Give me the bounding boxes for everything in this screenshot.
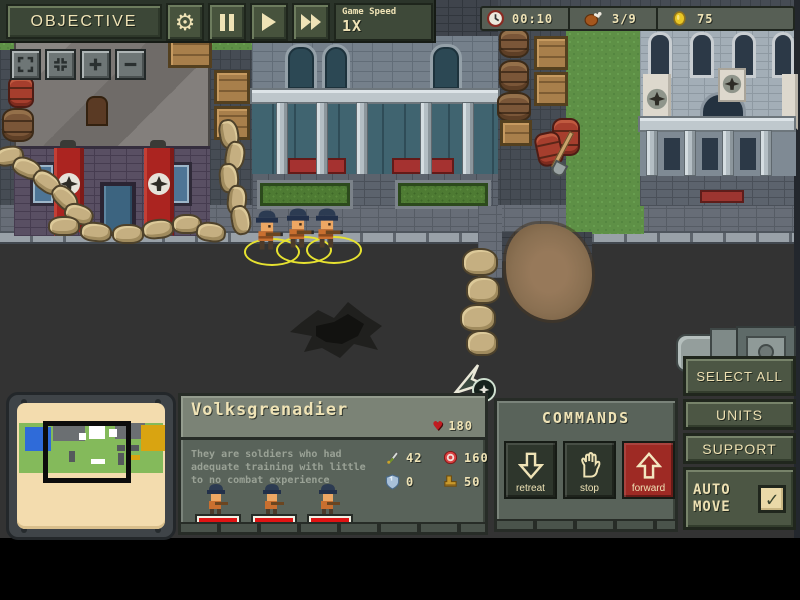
minimap-structure — [131, 455, 140, 460]
drumstick-icon — [584, 10, 602, 28]
arrow-up-icon — [636, 451, 662, 481]
column — [684, 130, 696, 176]
shield-icon — [385, 474, 400, 490]
wall-plaque — [718, 68, 746, 102]
column — [276, 102, 288, 176]
auto-move-checkbox[interactable]: ✓ — [758, 485, 786, 513]
arched-window — [430, 44, 462, 92]
portico-window — [740, 138, 756, 170]
eagle-emblem-icon — [722, 74, 742, 94]
objective-button[interactable]: OBJECTIVE — [6, 4, 162, 39]
soldier-unit[interactable] — [310, 206, 344, 250]
select-all-button[interactable]: SELECT ALL — [683, 356, 796, 396]
minimap-viewport[interactable] — [43, 421, 131, 483]
column — [420, 102, 432, 176]
stat-range-value: 160 — [464, 451, 489, 465]
eagle-emblem-icon — [147, 172, 171, 196]
sword-icon — [385, 450, 400, 465]
commands-panel: COMMANDS retreat stop forward — [494, 398, 678, 532]
check-icon: ✓ — [766, 487, 778, 511]
bottom-letterbox — [0, 538, 800, 600]
minimap-structure — [131, 445, 139, 451]
forward-button[interactable]: forward — [622, 441, 675, 499]
stat-attack-value: 42 — [406, 451, 422, 465]
sandbag — [466, 276, 500, 304]
column — [646, 130, 658, 176]
game-speed-box: Game Speed 1X — [334, 3, 433, 41]
wooden-crate — [534, 72, 568, 106]
clock-icon — [487, 10, 504, 27]
shrink-icon — [52, 56, 69, 73]
unit-info-panel: Volksgrenadier ♥ 180 They are soldiers w… — [178, 393, 488, 535]
soldier-unit[interactable] — [250, 208, 284, 252]
wooden-crate — [534, 36, 568, 70]
zoom-out-button[interactable] — [115, 49, 146, 80]
game-speed-value: 1X — [342, 17, 425, 35]
coin-cell: 75 — [658, 11, 793, 26]
column — [462, 102, 474, 176]
arched-window — [648, 32, 672, 78]
stop-label: stop — [580, 483, 599, 494]
sandbag — [48, 216, 80, 236]
pause-icon — [220, 14, 234, 31]
column — [722, 130, 734, 176]
hand-icon — [577, 451, 603, 481]
settings-button[interactable]: ⚙ — [166, 3, 204, 41]
fast-forward-icon — [301, 14, 321, 30]
fuel-barrel — [8, 76, 34, 108]
column — [760, 130, 772, 176]
sandbag — [466, 330, 498, 356]
auto-move-label: AUTO MOVE — [693, 482, 751, 516]
eagle-emblem-icon — [646, 88, 668, 110]
game-screen: OBJECTIVE ⚙ Game Speed 1X — [0, 0, 800, 600]
unit-portrait[interactable] — [259, 482, 285, 514]
arched-window — [690, 32, 714, 78]
unit-portrait[interactable] — [315, 482, 341, 514]
camera-expand-button[interactable] — [10, 49, 41, 80]
wooden-barrel — [2, 108, 34, 142]
commands-title: COMMANDS — [497, 409, 675, 427]
sandbag — [462, 248, 498, 276]
crater — [282, 292, 394, 366]
arched-window — [772, 32, 794, 78]
column — [356, 102, 368, 176]
fast-forward-button[interactable] — [292, 3, 330, 41]
zoom-in-icon — [87, 56, 104, 73]
panel-trim — [181, 522, 485, 532]
minimap-panel[interactable] — [6, 392, 176, 540]
coin-icon — [672, 11, 687, 26]
sandbag — [460, 304, 496, 332]
expand-icon — [17, 56, 34, 73]
support-button[interactable]: SUPPORT — [683, 433, 796, 464]
gear-icon: ⚙ — [175, 11, 196, 34]
unit-panel-header: Volksgrenadier ♥ 180 — [181, 396, 485, 440]
stat-speed: 50 — [443, 474, 480, 489]
camera-shrink-button[interactable] — [45, 49, 76, 80]
auto-move-toggle[interactable]: AUTO MOVE ✓ — [683, 467, 796, 530]
unit-hp: 180 — [448, 419, 473, 433]
food-value: 3/9 — [612, 12, 637, 26]
portico-beam — [638, 116, 796, 132]
food-cell: 3/9 — [570, 10, 656, 28]
column — [316, 102, 328, 176]
unit-name: Volksgrenadier — [191, 400, 348, 420]
wooden-barrel — [499, 28, 529, 58]
wooden-crate — [214, 70, 250, 104]
play-button[interactable] — [250, 3, 288, 41]
forward-label: forward — [632, 483, 665, 494]
play-icon — [262, 13, 276, 31]
arched-window — [285, 44, 317, 92]
arched-window — [322, 44, 350, 92]
stat-speed-value: 50 — [464, 475, 480, 489]
stat-range: 160 — [443, 450, 489, 465]
stop-button[interactable]: stop — [563, 441, 616, 499]
stat-armor: 0 — [385, 474, 414, 490]
timer-cell: 00:10 — [482, 10, 568, 27]
hedge-planter — [398, 183, 488, 206]
wooden-barrel — [497, 92, 531, 122]
stat-attack: 42 — [385, 450, 422, 465]
arrow-down-icon — [518, 451, 544, 481]
pause-button[interactable] — [208, 3, 246, 41]
resource-bar: 00:10 3/9 75 — [480, 6, 795, 31]
boot-icon — [443, 474, 458, 489]
game-speed-label: Game Speed — [342, 7, 425, 17]
portico-window — [702, 138, 718, 170]
minimap-gold-area — [141, 425, 165, 451]
timer-value: 00:10 — [512, 12, 553, 26]
panel-trim — [497, 519, 675, 529]
target-icon — [443, 450, 458, 465]
entrance-mat — [700, 190, 744, 203]
coin-value: 75 — [697, 12, 713, 26]
portico-window — [664, 138, 680, 170]
hq-roof-window — [86, 96, 108, 126]
zoom-in-button[interactable] — [80, 49, 111, 80]
retreat-label: retreat — [516, 483, 545, 494]
hedge-planter — [260, 183, 350, 206]
retreat-button[interactable]: retreat — [504, 441, 557, 499]
zoom-out-icon — [122, 56, 139, 73]
wooden-barrel — [499, 60, 529, 92]
minimap-paper — [17, 403, 165, 529]
units-button[interactable]: UNITS — [683, 399, 796, 430]
sandbag — [112, 224, 144, 244]
unit-portrait[interactable] — [203, 482, 229, 514]
stat-armor-value: 0 — [406, 475, 414, 489]
wooden-crate — [500, 120, 532, 146]
heart-icon: ♥ — [433, 417, 442, 435]
